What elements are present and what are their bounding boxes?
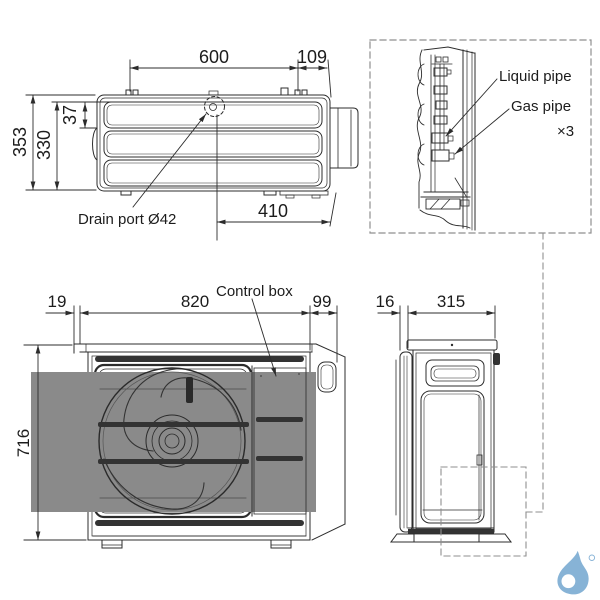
side-view bbox=[378, 306, 526, 556]
registered-mark-icon bbox=[589, 555, 595, 561]
dim-330-label: 330 bbox=[34, 130, 54, 160]
control-box-label: Control box bbox=[216, 283, 293, 300]
top-view bbox=[26, 60, 358, 240]
liquid-pipe-label: Liquid pipe bbox=[499, 68, 572, 85]
drain-port-label: Drain port Ø42 bbox=[78, 211, 176, 228]
dim-109-label: 109 bbox=[297, 47, 327, 67]
fan-grille bbox=[95, 365, 251, 517]
pipe-multiplier-label: ×3 bbox=[557, 123, 574, 140]
brand-water-drop-logo bbox=[557, 551, 594, 595]
dim-353-label: 353 bbox=[10, 127, 30, 157]
dim-37-label: 37 bbox=[60, 105, 80, 125]
technical-drawing: 600 109 353 330 37 410 Drain port Ø42 Li… bbox=[0, 0, 600, 600]
dim-315-label: 315 bbox=[437, 292, 465, 311]
dim-820-label: 820 bbox=[181, 292, 209, 311]
dim-600-label: 600 bbox=[199, 47, 229, 67]
dim-410-label: 410 bbox=[258, 201, 288, 221]
dim-19-label: 19 bbox=[48, 292, 67, 311]
dim-716-label: 716 bbox=[14, 429, 33, 457]
dim-99-label: 99 bbox=[313, 292, 332, 311]
gas-pipe-label: Gas pipe bbox=[511, 98, 571, 115]
front-view bbox=[24, 299, 345, 548]
dim-16-label: 16 bbox=[376, 292, 395, 311]
